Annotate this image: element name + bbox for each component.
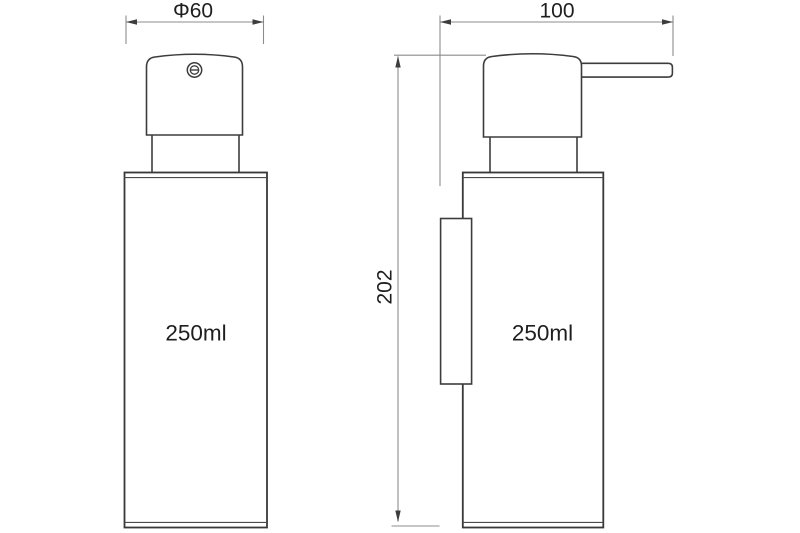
capacity-label-front: 250ml xyxy=(165,321,226,346)
bottle-body-front xyxy=(125,173,268,528)
arrowhead-right-icon xyxy=(253,19,264,24)
pump-spout xyxy=(582,63,672,77)
bottle-neck-front xyxy=(152,135,239,172)
bottle-body-side xyxy=(463,173,604,528)
drawing-canvas: Φ60 250ml 100 xyxy=(0,0,800,533)
arrowhead-down-icon xyxy=(395,511,400,523)
front-view: Φ60 250ml xyxy=(125,0,268,528)
side-view: 100 202 250ml xyxy=(374,0,674,528)
arrowhead-right-icon xyxy=(662,19,673,24)
height-dim-label: 202 xyxy=(374,269,397,304)
bottle-neck-side xyxy=(490,137,577,172)
dispenser-technical-drawing: Φ60 250ml 100 xyxy=(0,0,800,533)
arrowhead-left-icon xyxy=(440,19,451,24)
diameter-dim-label: Φ60 xyxy=(173,0,213,23)
depth-dim-label: 100 xyxy=(539,0,574,23)
arrowhead-left-icon xyxy=(126,19,137,24)
pump-head-side xyxy=(484,54,582,137)
arrowhead-up-icon xyxy=(395,56,400,68)
diameter-dimension: Φ60 xyxy=(126,0,264,44)
wall-mount-bracket xyxy=(441,219,472,385)
capacity-label-side: 250ml xyxy=(512,321,573,346)
